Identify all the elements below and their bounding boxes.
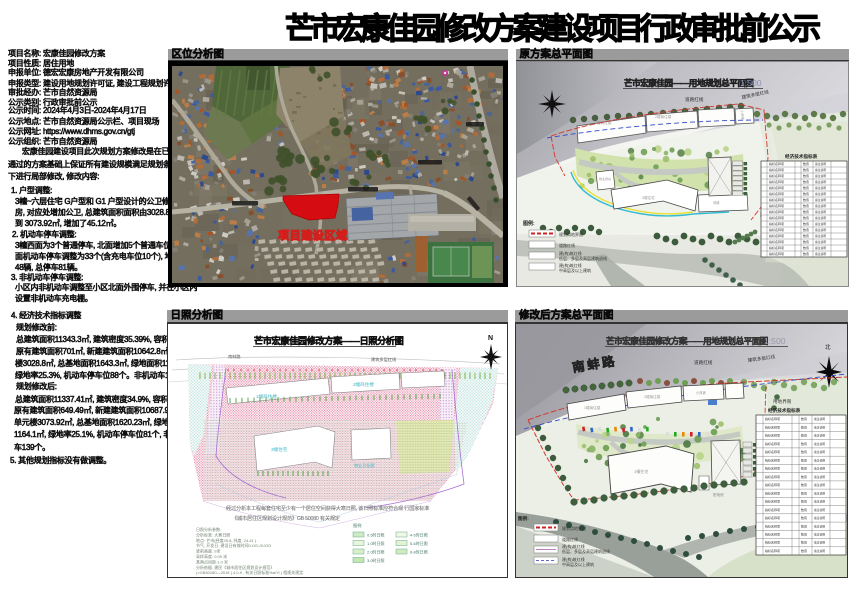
svg-text:小商铺: 小商铺 bbox=[696, 390, 706, 395]
svg-text:指标名称项: 指标名称项 bbox=[769, 233, 784, 238]
svg-text:2.0时日照: 2.0时日照 bbox=[367, 549, 385, 555]
svg-text:数值: 数值 bbox=[803, 215, 809, 220]
svg-text:备注说明: 备注说明 bbox=[814, 417, 825, 421]
svg-text:采样高度: 0.05 米: 采样高度: 0.05 米 bbox=[196, 553, 227, 559]
svg-text:备注说明: 备注说明 bbox=[815, 216, 826, 220]
svg-text:备注说明: 备注说明 bbox=[815, 198, 826, 202]
svg-text:数值: 数值 bbox=[801, 523, 807, 528]
svg-text:道路红线: 道路红线 bbox=[685, 96, 704, 103]
svg-text:建筑多层红线: 建筑多层红线 bbox=[371, 356, 397, 363]
svg-text:3幢住宅: 3幢住宅 bbox=[642, 195, 655, 200]
svg-text:备注说明: 备注说明 bbox=[815, 204, 826, 208]
svg-text:芒市宏康佳园修改方案——用地规划总平面图: 芒市宏康佳园修改方案——用地规划总平面图 bbox=[606, 335, 769, 346]
svg-text:数值: 数值 bbox=[801, 416, 807, 421]
svg-text:指标名称项: 指标名称项 bbox=[769, 167, 784, 172]
svg-text:备注说明: 备注说明 bbox=[814, 491, 825, 495]
svg-text:节气, 开发日, 建设日有效时间0:OG-/5:/OO: 节气, 开发日, 建设日有效时间0:OG-/5:/OO bbox=[196, 542, 271, 548]
svg-text:物业用房: 物业用房 bbox=[599, 176, 611, 181]
svg-text:指标名称项: 指标名称项 bbox=[769, 239, 784, 244]
svg-text:备注说明: 备注说明 bbox=[814, 475, 825, 479]
svg-text:备注说明: 备注说明 bbox=[814, 467, 825, 471]
svg-text:3幢住宅: 3幢住宅 bbox=[271, 446, 288, 453]
svg-text:某两点间距-1.0 米: 某两点间距-1.0 米 bbox=[196, 558, 228, 564]
svg-text:指标名称项: 指标名称项 bbox=[765, 499, 780, 504]
svg-text:经济技术指标表: 经济技术指标表 bbox=[785, 153, 818, 160]
svg-text:6-8时日照: 6-8时日照 bbox=[410, 549, 428, 555]
svg-text:数值: 数值 bbox=[803, 209, 809, 214]
svg-text:1:500: 1:500 bbox=[764, 336, 786, 346]
svg-text:备注说明: 备注说明 bbox=[815, 174, 826, 178]
svg-text:备注说明: 备注说明 bbox=[815, 222, 826, 226]
svg-text:数值: 数值 bbox=[803, 197, 809, 202]
svg-text:规划用地界限: 规划用地界限 bbox=[562, 525, 586, 531]
svg-text:1幢商住楼: 1幢商住楼 bbox=[584, 405, 601, 410]
svg-text:备注说明: 备注说明 bbox=[815, 186, 826, 190]
svg-text:备注说明: 备注说明 bbox=[815, 162, 826, 166]
svg-text:道路红线: 道路红线 bbox=[694, 359, 713, 366]
svg-text:备注说明: 备注说明 bbox=[814, 500, 825, 504]
svg-text:中高层及以上建筑: 中高层及以上建筑 bbox=[559, 267, 591, 273]
svg-text:指标名称项: 指标名称项 bbox=[769, 173, 784, 178]
svg-text:2幢商住楼: 2幢商住楼 bbox=[644, 394, 661, 399]
svg-text:商铺: 商铺 bbox=[713, 200, 720, 205]
svg-text:备注说明: 备注说明 bbox=[815, 246, 826, 250]
svg-text:数值: 数值 bbox=[801, 490, 807, 495]
svg-text:指标名称项: 指标名称项 bbox=[765, 416, 780, 421]
svg-text:低层、多层及高层建筑退线: 低层、多层及高层建筑退线 bbox=[559, 255, 607, 261]
svg-text:N: N bbox=[488, 335, 493, 342]
svg-text:备注说明: 备注说明 bbox=[815, 240, 826, 244]
svg-text:数值: 数值 bbox=[801, 424, 807, 429]
svg-text:1:500: 1:500 bbox=[740, 78, 762, 88]
svg-text:3幢住宅: 3幢住宅 bbox=[634, 468, 648, 474]
svg-text:芒市宏康佳园——用地规划总平面图: 芒市宏康佳园——用地规划总平面图 bbox=[624, 77, 754, 88]
svg-text:指标名称项: 指标名称项 bbox=[765, 424, 780, 429]
svg-text:分析依据: 建民《城市居住区规划设计规范》: 分析依据: 建民《城市居住区规划设计规范》 bbox=[196, 564, 274, 570]
svg-text:北: 北 bbox=[825, 343, 831, 351]
svg-text:1幢商住楼: 1幢商住楼 bbox=[256, 393, 277, 400]
svg-text:数值: 数值 bbox=[803, 167, 809, 172]
svg-text:0.5时日照: 0.5时日照 bbox=[367, 532, 385, 538]
svg-text:备注说明: 备注说明 bbox=[814, 516, 825, 520]
svg-text:指标名称项: 指标名称项 bbox=[765, 474, 780, 479]
svg-text:备注说明: 备注说明 bbox=[815, 210, 826, 214]
svg-text:数值: 数值 bbox=[801, 449, 807, 454]
svg-text:指标名称项: 指标名称项 bbox=[765, 507, 780, 512]
svg-text:指标名称项: 指标名称项 bbox=[765, 490, 780, 495]
svg-text:日照分析参数:: 日照分析参数: bbox=[196, 526, 221, 532]
svg-text:道路红线: 道路红线 bbox=[559, 242, 575, 248]
svg-text:数值: 数值 bbox=[801, 457, 807, 462]
svg-text:图例:: 图例: bbox=[518, 515, 529, 522]
svg-text:数值: 数值 bbox=[801, 433, 807, 438]
svg-text:数值: 数值 bbox=[803, 221, 809, 226]
svg-text:配电房: 配电房 bbox=[713, 492, 724, 497]
svg-text:4-5时日照: 4-5时日照 bbox=[410, 532, 428, 538]
svg-text:图例:: 图例: bbox=[523, 220, 535, 227]
svg-text:指标名称项: 指标名称项 bbox=[769, 185, 784, 190]
svg-text:2幢商住楼: 2幢商住楼 bbox=[353, 381, 374, 388]
svg-text:(>GB50180—2018 ( 4.0.9 , 有关日照标: (>GB50180—2018 ( 4.0.9 , 有关日照标准%a/Yi ) 相… bbox=[196, 569, 304, 575]
svg-text:数值: 数值 bbox=[801, 441, 807, 446]
svg-text:道路红线: 道路红线 bbox=[562, 536, 578, 542]
svg-text:物业及配套: 物业及配套 bbox=[354, 462, 376, 469]
svg-text:备注说明: 备注说明 bbox=[815, 192, 826, 196]
svg-text:数值: 数值 bbox=[801, 515, 807, 520]
svg-text:指标名称项: 指标名称项 bbox=[769, 191, 784, 196]
svg-text:芒市宏康佳园修改方案——日照分析图: 芒市宏康佳园修改方案——日照分析图 bbox=[254, 335, 404, 346]
svg-text:指标名称项: 指标名称项 bbox=[765, 482, 780, 487]
svg-text:规划用地界限: 规划用地界限 bbox=[559, 231, 583, 237]
svg-text:数值: 数值 bbox=[801, 540, 807, 545]
svg-text:备注说明: 备注说明 bbox=[815, 180, 826, 184]
svg-text:指标名称项: 指标名称项 bbox=[769, 197, 784, 202]
svg-text:数值: 数值 bbox=[801, 474, 807, 479]
svg-text:2幢商住楼: 2幢商住楼 bbox=[655, 114, 672, 119]
svg-text:1.0时日照: 1.0时日照 bbox=[367, 540, 385, 546]
svg-text:数值: 数值 bbox=[801, 499, 807, 504]
svg-text:数值: 数值 bbox=[801, 507, 807, 512]
svg-text:指标名称项: 指标名称项 bbox=[769, 179, 784, 184]
svg-text:数值: 数值 bbox=[803, 251, 809, 256]
svg-text:备注说明: 备注说明 bbox=[815, 252, 826, 256]
svg-text:经济技术指标表: 经济技术指标表 bbox=[768, 407, 801, 414]
svg-text:指标名称项: 指标名称项 bbox=[769, 161, 784, 166]
svg-text:指标名称项: 指标名称项 bbox=[765, 466, 780, 471]
svg-text:数值: 数值 bbox=[803, 227, 809, 232]
svg-text:指标名称项: 指标名称项 bbox=[769, 215, 784, 220]
svg-text:备注说明: 备注说明 bbox=[815, 234, 826, 238]
svg-text:备注说明: 备注说明 bbox=[814, 533, 825, 537]
svg-text:备注说明: 备注说明 bbox=[814, 434, 825, 438]
svg-text:备注说明: 备注说明 bbox=[814, 425, 825, 429]
svg-text:5-6时日照: 5-6时日照 bbox=[410, 540, 428, 546]
svg-text:数值: 数值 bbox=[803, 203, 809, 208]
svg-text:指标名称项: 指标名称项 bbox=[765, 540, 780, 545]
svg-text:谁前高度: 9米: 谁前高度: 9米 bbox=[196, 548, 220, 554]
svg-text:数值: 数值 bbox=[803, 239, 809, 244]
svg-text:数值: 数值 bbox=[803, 233, 809, 238]
svg-text:经过分析本工程每套住宅至少有一个居住空间获得大寒日照, 该日: 经过分析本工程每套住宅至少有一个居住空间获得大寒日照, 该日照标准应符合现 行国… bbox=[226, 504, 429, 512]
svg-text:备注说明: 备注说明 bbox=[814, 483, 825, 487]
svg-text:数值: 数值 bbox=[803, 245, 809, 250]
svg-text:3.0时日照: 3.0时日照 bbox=[367, 557, 385, 563]
svg-text:指标名称项: 指标名称项 bbox=[765, 548, 780, 553]
svg-text:备注说明: 备注说明 bbox=[814, 450, 825, 454]
svg-text:数值: 数值 bbox=[801, 548, 807, 553]
svg-text:备注说明: 备注说明 bbox=[814, 524, 825, 528]
svg-text:地点: 芒市(经度25.8, 纬度. 24.41 ) .: 地点: 芒市(经度25.8, 纬度. 24.41 ) . bbox=[196, 537, 258, 543]
svg-text:南蚌路: 南蚌路 bbox=[228, 353, 241, 360]
svg-text:《城市居住区规划设计规范》GB 50080 有关规定: 《城市居住区规划设计规范》GB 50080 有关规定 bbox=[232, 514, 340, 522]
svg-text:指标名称项: 指标名称项 bbox=[769, 209, 784, 214]
svg-text:数值: 数值 bbox=[801, 532, 807, 537]
svg-text:指标名称项: 指标名称项 bbox=[769, 251, 784, 256]
svg-text:备注说明: 备注说明 bbox=[814, 442, 825, 446]
svg-text:指标名称项: 指标名称项 bbox=[769, 221, 784, 226]
svg-text:指标名称项: 指标名称项 bbox=[769, 227, 784, 232]
svg-text:指标名称项: 指标名称项 bbox=[769, 245, 784, 250]
svg-text:指标名称项: 指标名称项 bbox=[765, 457, 780, 462]
svg-text:数值: 数值 bbox=[803, 161, 809, 166]
svg-text:数值: 数值 bbox=[803, 173, 809, 178]
svg-text:指标名称项: 指标名称项 bbox=[765, 449, 780, 454]
svg-text:备注说明: 备注说明 bbox=[814, 508, 825, 512]
svg-text:备注说明: 备注说明 bbox=[814, 549, 825, 553]
svg-text:指标名称项: 指标名称项 bbox=[765, 523, 780, 528]
svg-text:数值: 数值 bbox=[803, 191, 809, 196]
svg-text:备注说明: 备注说明 bbox=[815, 228, 826, 232]
svg-text:数值: 数值 bbox=[803, 179, 809, 184]
svg-text:低层、多层及高层建筑退线: 低层、多层及高层建筑退线 bbox=[562, 548, 610, 554]
svg-text:小商铺: 小商铺 bbox=[739, 110, 745, 121]
svg-text:指标名称项: 指标名称项 bbox=[765, 441, 780, 446]
svg-text:图例: 图例 bbox=[353, 522, 361, 529]
svg-text:备注说明: 备注说明 bbox=[815, 168, 826, 172]
svg-text:指标名称项: 指标名称项 bbox=[765, 433, 780, 438]
svg-text:数值: 数值 bbox=[803, 185, 809, 190]
svg-text:指标名称项: 指标名称项 bbox=[769, 203, 784, 208]
svg-text:指标名称项: 指标名称项 bbox=[765, 515, 780, 520]
svg-text:中高层及以上建筑: 中高层及以上建筑 bbox=[562, 561, 594, 567]
svg-text:指标名称项: 指标名称项 bbox=[765, 532, 780, 537]
svg-text:数值: 数值 bbox=[801, 466, 807, 471]
svg-text:分析标准: 大寒日照: 分析标准: 大寒日照 bbox=[196, 531, 230, 537]
svg-text:备注说明: 备注说明 bbox=[814, 541, 825, 545]
svg-text:备注说明: 备注说明 bbox=[814, 458, 825, 462]
svg-text:数值: 数值 bbox=[801, 482, 807, 487]
